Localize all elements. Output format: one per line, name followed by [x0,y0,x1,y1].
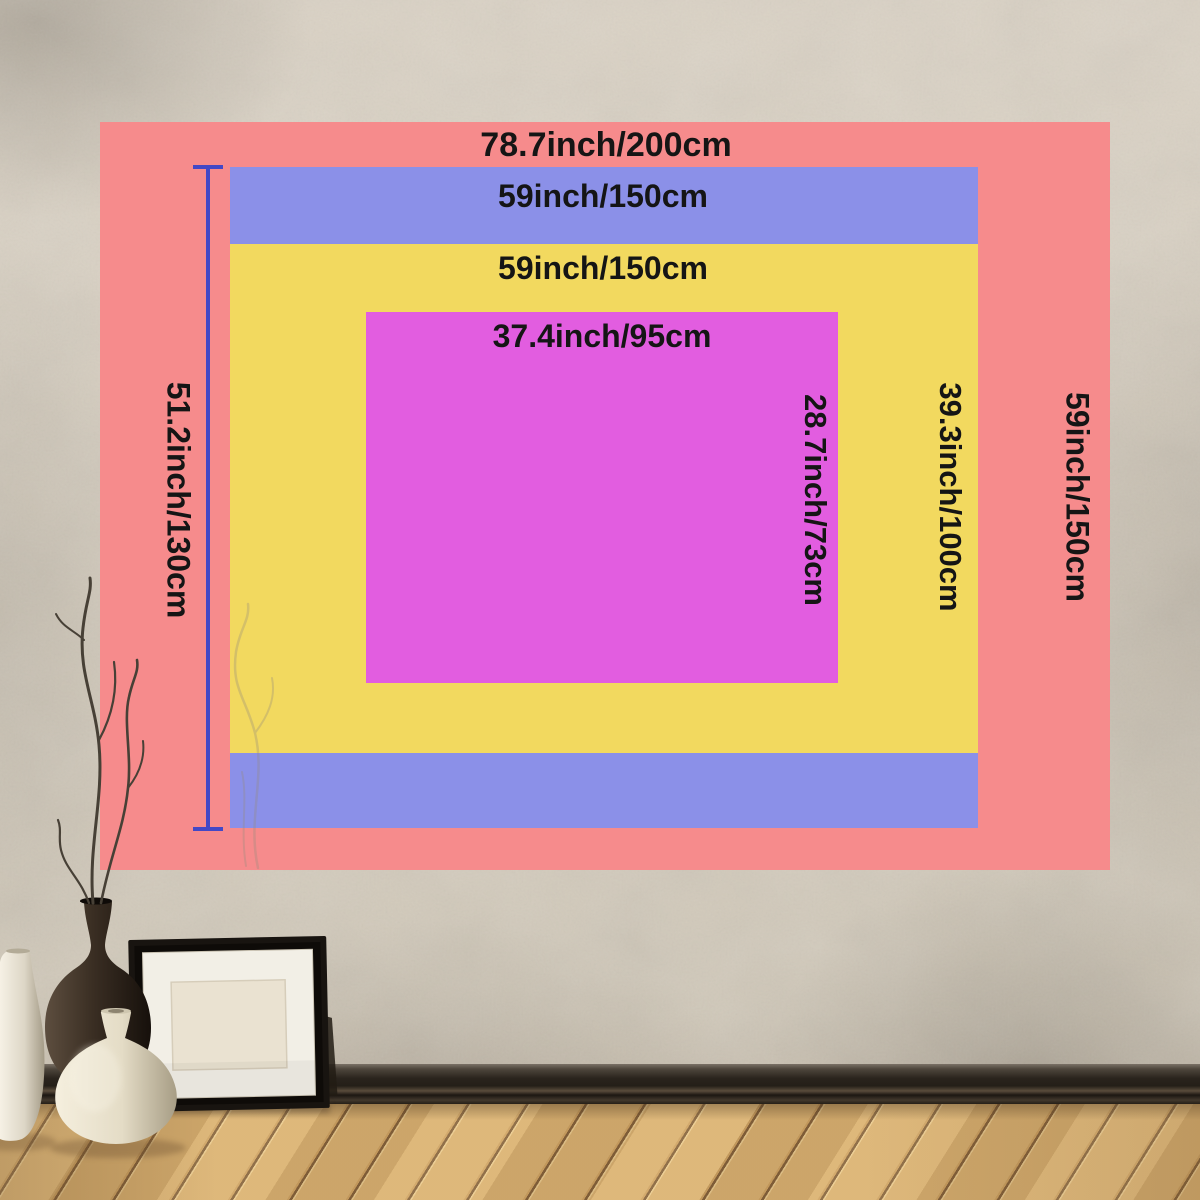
label-inner-width: 37.4inch/95cm [493,319,712,354]
label-yellow-height: 39.3inch/100cm [933,382,967,611]
label-outer-height: 59inch/150cm [1059,392,1094,602]
label-outer-width: 78.7inch/200cm [480,127,731,164]
size-rect-inner-magenta [366,312,838,683]
height-ruler-line [206,166,210,830]
baseboard [0,1064,1200,1106]
wood-floor [0,1104,1200,1200]
label-middle-width: 59inch/150cm [498,179,708,214]
label-middle-height: 51.2inch/130cm [160,382,195,619]
label-inner-height: 28.7inch/73cm [798,394,832,606]
label-yellow-width: 59inch/150cm [498,251,708,286]
